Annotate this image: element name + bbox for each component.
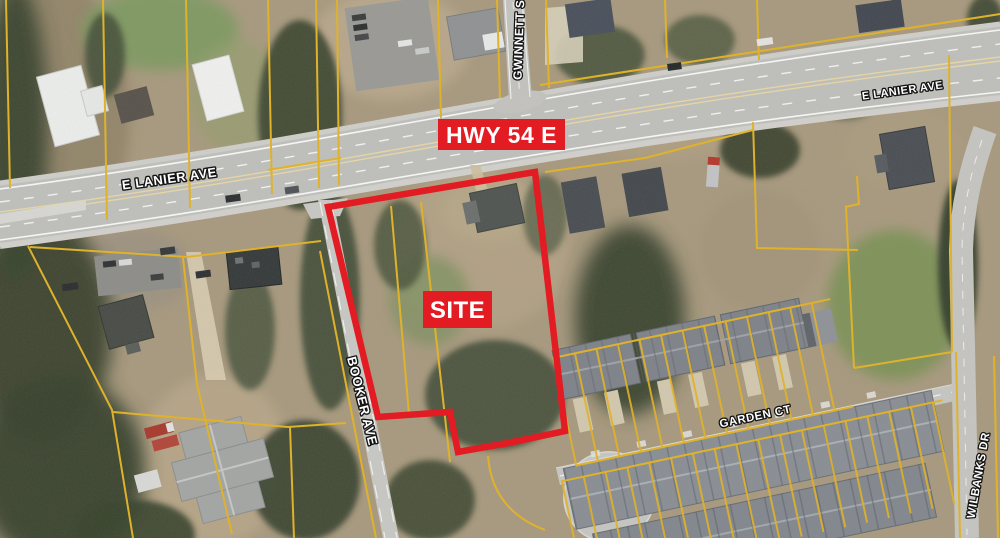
- site-label-text: SITE: [430, 297, 485, 324]
- highway-label-box: HWY 54 E: [438, 119, 565, 150]
- site-label-box: SITE: [423, 291, 492, 328]
- aerial-site-map: E LANIER AVE E LANIER AVE GWINNETT ST BO…: [0, 0, 1000, 538]
- highway-label-text: HWY 54 E: [446, 122, 557, 148]
- photo-grain-overlay: [0, 0, 1000, 538]
